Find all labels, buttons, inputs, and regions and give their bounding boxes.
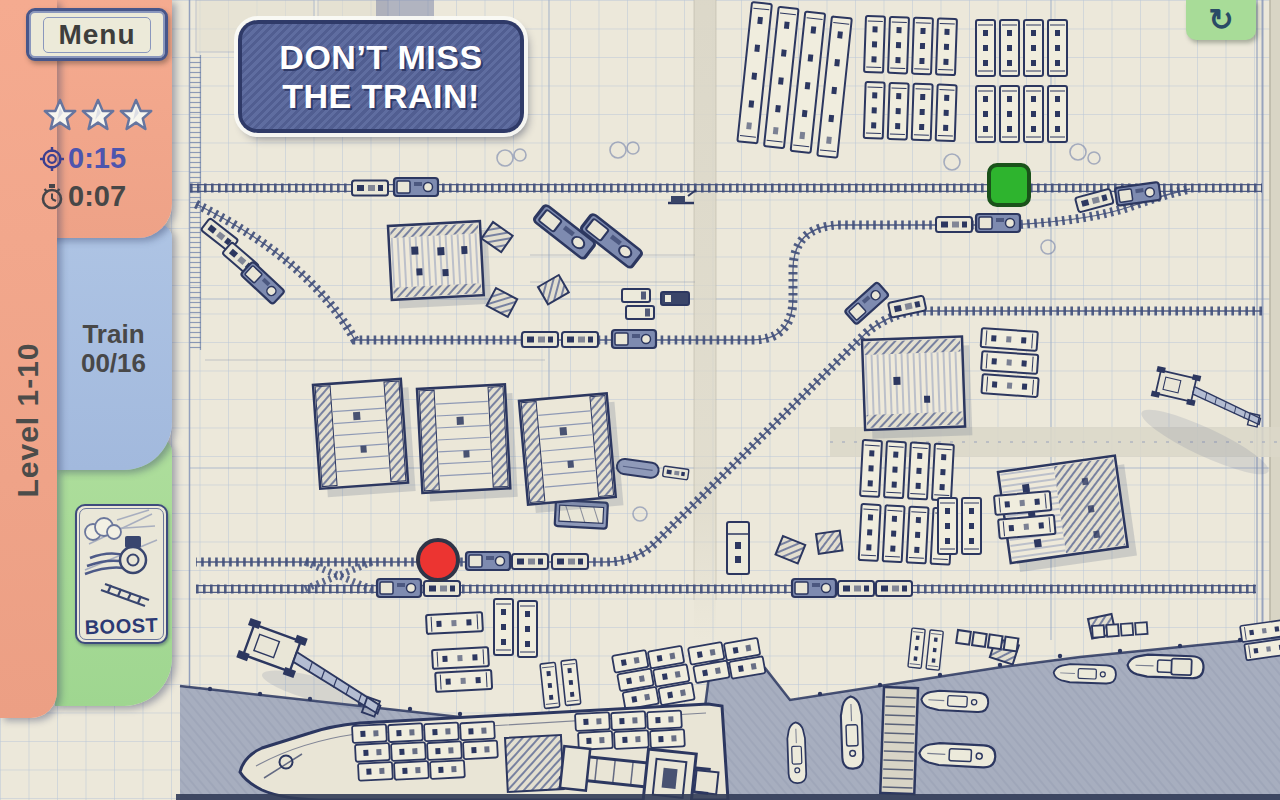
signal-go-square[interactable]: [989, 165, 1029, 205]
boost-card[interactable]: BOOST: [75, 504, 168, 644]
boost-tab[interactable]: BOOST: [55, 438, 172, 706]
star-icon: [45, 100, 75, 129]
map-bottom-edge: [176, 794, 1280, 800]
stars-rating: [42, 96, 158, 136]
banner-line2: THE TRAIN!: [282, 77, 480, 115]
menu-label: Menu: [43, 17, 150, 53]
train-count-tab[interactable]: Train 00/16: [55, 224, 172, 470]
building: [862, 336, 972, 439]
menu-button[interactable]: Menu: [26, 8, 168, 61]
level-label: Level 1-10: [11, 342, 45, 497]
elapsed-time-value: 0:07: [68, 180, 126, 213]
target-time-row: 0:15: [40, 142, 126, 175]
boost-train-icon: [77, 506, 162, 614]
target-time-value: 0:15: [68, 142, 126, 175]
railway-map: [0, 0, 1280, 800]
star-icon: [121, 100, 151, 129]
building: [388, 221, 491, 309]
game-screen: DON’T MISS THE TRAIN! ↻ BOOST Train 00/1…: [0, 0, 1280, 800]
signal-stop-circle[interactable]: [418, 540, 458, 580]
train-tab-count: 00/16: [55, 349, 172, 378]
road-vertical: [694, 0, 716, 640]
floating-dock: [880, 687, 918, 794]
boost-label: BOOST: [77, 613, 167, 639]
stopwatch-icon: [40, 184, 64, 210]
star-icon: [83, 100, 113, 129]
level-goal-banner: DON’T MISS THE TRAIN!: [238, 20, 524, 133]
restart-level-button[interactable]: ↻: [1186, 0, 1256, 40]
banner-line1: DON’T MISS: [279, 38, 482, 76]
truck: [727, 522, 749, 574]
elapsed-time-row: 0:07: [40, 180, 126, 213]
target-icon: [40, 147, 64, 171]
refresh-icon: ↻: [1208, 5, 1233, 35]
train-tab-title: Train: [55, 320, 172, 349]
